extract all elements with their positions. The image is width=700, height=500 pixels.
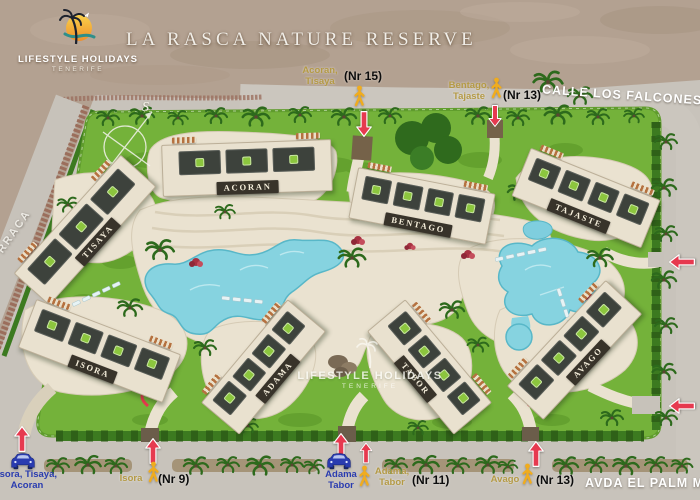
brand-logo-icon [55,8,101,54]
roof-panel [34,309,71,342]
roof-panel [616,193,650,225]
roof-panel [178,150,221,175]
roof-panel [528,158,562,190]
brand-subname: TENERIFE [12,66,144,73]
roof-panel [212,381,247,416]
building-label: ACORAN [216,179,279,195]
pedestrian-icon [352,85,367,107]
building-acoran: ACORAN [161,139,333,197]
entrance-arrow-icon [14,424,30,454]
pedestrian-icon [520,463,535,485]
roof-panel [586,181,620,213]
entrance-label-bentago-tajaste: Bentago, Tajaste [446,81,492,102]
map-title: LA RASCA NATURE RESERVE [126,29,477,51]
street-avda-el-palm-mar: AVDA EL PALM MAR [585,476,700,490]
entrance-arrow-icon [360,441,373,465]
entrance-arrow-icon [356,109,372,139]
entrance-label-adama-tabor: Adama, Tabor [372,467,412,488]
roof-panel [100,334,137,367]
entrance-arrow-icon [667,398,697,414]
entrance-label-car-adama: Adama Tabor [321,470,361,491]
entrance-number: (Nr 11) [412,474,449,487]
resort-site-map: ACORAN TISAYA BENTAGO TAJASTE ISORA ADAM… [0,0,700,500]
awning [296,132,320,139]
entrance-number: (Nr 9) [158,473,189,486]
brand-name: LIFESTYLE HOLIDAYS [12,54,144,65]
roof-panel [424,188,455,217]
entrance-number: (Nr 15) [344,70,382,83]
entrance-arrow-icon [488,103,502,129]
entrance-label-acoran-tisaya: Acoran, Tisaya [294,66,346,87]
entrance-number: (Nr 13) [536,474,574,487]
entrance-label-isora: Isora [114,474,148,485]
roof-panel [272,147,315,172]
entrance-arrow-icon [667,254,697,270]
entrance-label-car-isora: Isora, Tisaya, Acoran [0,470,62,491]
entrance-number: (Nr 13) [503,89,541,102]
roof-panel [586,291,623,328]
roof-panel [455,194,486,223]
compass-south-label: S [142,100,149,116]
roof-panel [133,347,170,380]
roof-panel [225,148,268,173]
awning [172,137,196,144]
entrance-label-avago: Avago [488,475,522,486]
roof-panel [446,381,481,416]
brand-logo: LIFESTYLE HOLIDAYS TENERIFE [12,8,144,73]
roof-panel [557,169,591,201]
roof-panel [392,182,423,211]
roof-panel [67,321,104,354]
roof-panel [361,176,392,205]
roof-panel [518,364,555,401]
